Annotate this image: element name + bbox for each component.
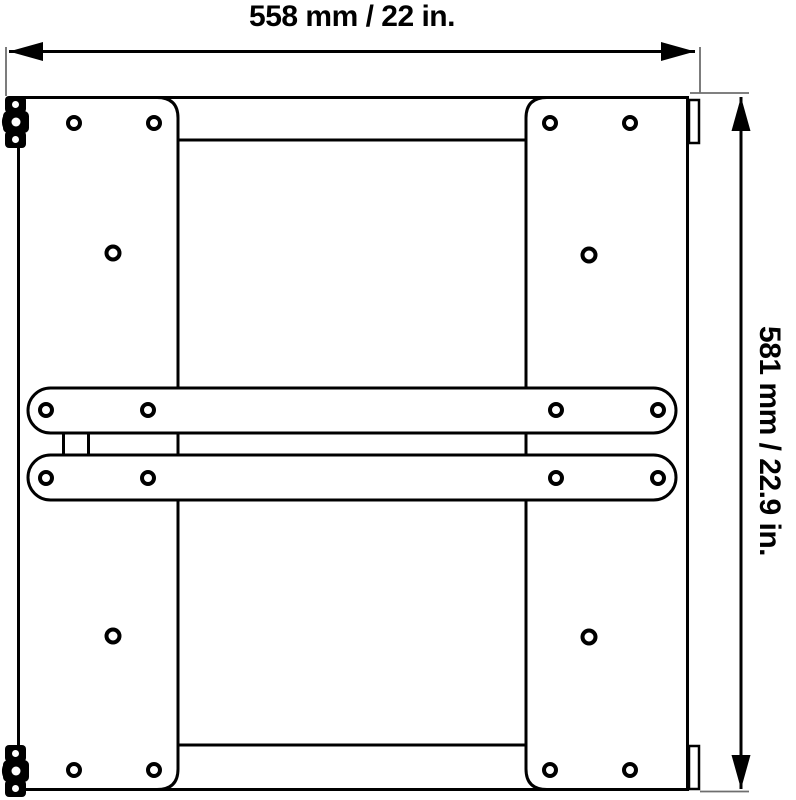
screw-hole bbox=[142, 472, 154, 484]
lower-crossbar bbox=[28, 455, 676, 500]
screw-hole bbox=[624, 764, 636, 776]
screw-hole bbox=[624, 117, 636, 129]
height-dimension-label: 581 mm / 22.9 in. bbox=[752, 326, 786, 556]
screw-hole bbox=[148, 764, 160, 776]
right-bottom-tab bbox=[689, 746, 699, 789]
screw-hole bbox=[652, 472, 664, 484]
arrowhead-up bbox=[732, 97, 751, 131]
bracket-drawing bbox=[0, 0, 796, 800]
screw-hole bbox=[107, 247, 120, 260]
screw-hole bbox=[550, 472, 562, 484]
left-mounting-plate bbox=[19, 98, 179, 790]
height-dimension-line bbox=[690, 93, 751, 792]
right-top-tab bbox=[689, 100, 699, 143]
arrowhead-down bbox=[732, 755, 751, 789]
width-dimension-line bbox=[6, 42, 700, 96]
screw-hole bbox=[107, 630, 120, 643]
screw-hole bbox=[544, 117, 556, 129]
screw-hole bbox=[583, 631, 596, 644]
screw-hole bbox=[550, 404, 562, 416]
screw-hole bbox=[142, 404, 154, 416]
screw-hole bbox=[544, 764, 556, 776]
technical-drawing-canvas: 558 mm / 22 in. 581 mm / 22.9 in. bbox=[0, 0, 796, 800]
screw-hole bbox=[40, 404, 52, 416]
screw-hole bbox=[68, 117, 80, 129]
screw-hole bbox=[40, 472, 52, 484]
left-top-hinge-clamp bbox=[3, 96, 29, 148]
screw-hole bbox=[583, 249, 596, 262]
screw-hole bbox=[652, 404, 664, 416]
width-dimension-label: 558 mm / 22 in. bbox=[152, 0, 552, 34]
screw-hole bbox=[148, 117, 160, 129]
screw-hole bbox=[68, 764, 80, 776]
arrowhead-left bbox=[9, 42, 43, 61]
arrowhead-right bbox=[661, 42, 695, 61]
left-bottom-hinge-clamp bbox=[3, 745, 29, 797]
right-mounting-plate bbox=[526, 98, 688, 790]
upper-crossbar bbox=[28, 388, 676, 433]
